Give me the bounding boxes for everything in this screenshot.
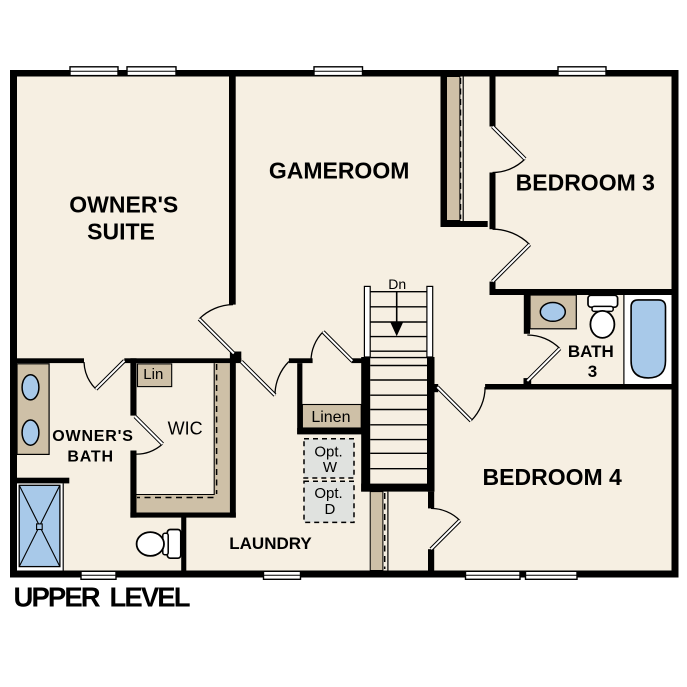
svg-text:BEDROOM 3: BEDROOM 3 (516, 170, 655, 196)
svg-text:W: W (323, 459, 338, 476)
svg-text:OWNER'S: OWNER'S (52, 428, 133, 445)
svg-text:BATH: BATH (67, 449, 113, 466)
svg-text:Lin: Lin (143, 366, 163, 383)
svg-text:Linen: Linen (311, 409, 350, 426)
svg-text:OWNER'S: OWNER'S (69, 191, 178, 217)
svg-text:Opt.: Opt. (314, 485, 342, 502)
svg-text:BATH: BATH (568, 342, 614, 361)
svg-text:BEDROOM 4: BEDROOM 4 (483, 464, 623, 490)
svg-text:LAUNDRY: LAUNDRY (229, 534, 312, 553)
svg-text:WIC: WIC (168, 419, 203, 439)
svg-text:3: 3 (588, 362, 597, 381)
svg-text:D: D (324, 501, 335, 518)
svg-text:Dn: Dn (388, 276, 406, 292)
svg-text:SUITE: SUITE (87, 218, 155, 244)
svg-text:GAMEROOM: GAMEROOM (269, 157, 410, 183)
svg-text:UPPER LEVEL: UPPER LEVEL (14, 581, 190, 612)
